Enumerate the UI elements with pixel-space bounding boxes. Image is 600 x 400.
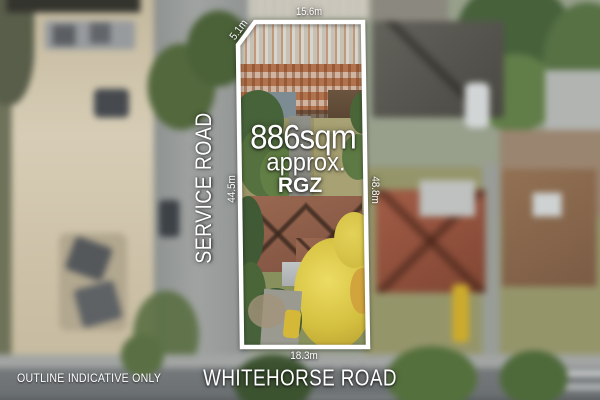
zoning-label: RGZ bbox=[278, 174, 322, 198]
whitehorse-road-label: WHITEHORSE ROAD bbox=[203, 365, 397, 392]
dimension-right: 48.8m bbox=[369, 176, 381, 204]
service-road-label: SERVICE ROAD bbox=[191, 112, 217, 263]
dimension-top: 15.6m bbox=[296, 6, 322, 18]
outline-disclaimer: OUTLINE INDICATIVE ONLY bbox=[17, 371, 161, 385]
property-boundary-outline bbox=[0, 0, 600, 400]
aerial-property-photo: 15.6m 5.1m 44.5m 48.8m 18.3m SERVICE ROA… bbox=[0, 0, 600, 400]
dimension-left: 44.5m bbox=[226, 175, 238, 203]
dimension-bottom: 18.3m bbox=[290, 350, 318, 362]
